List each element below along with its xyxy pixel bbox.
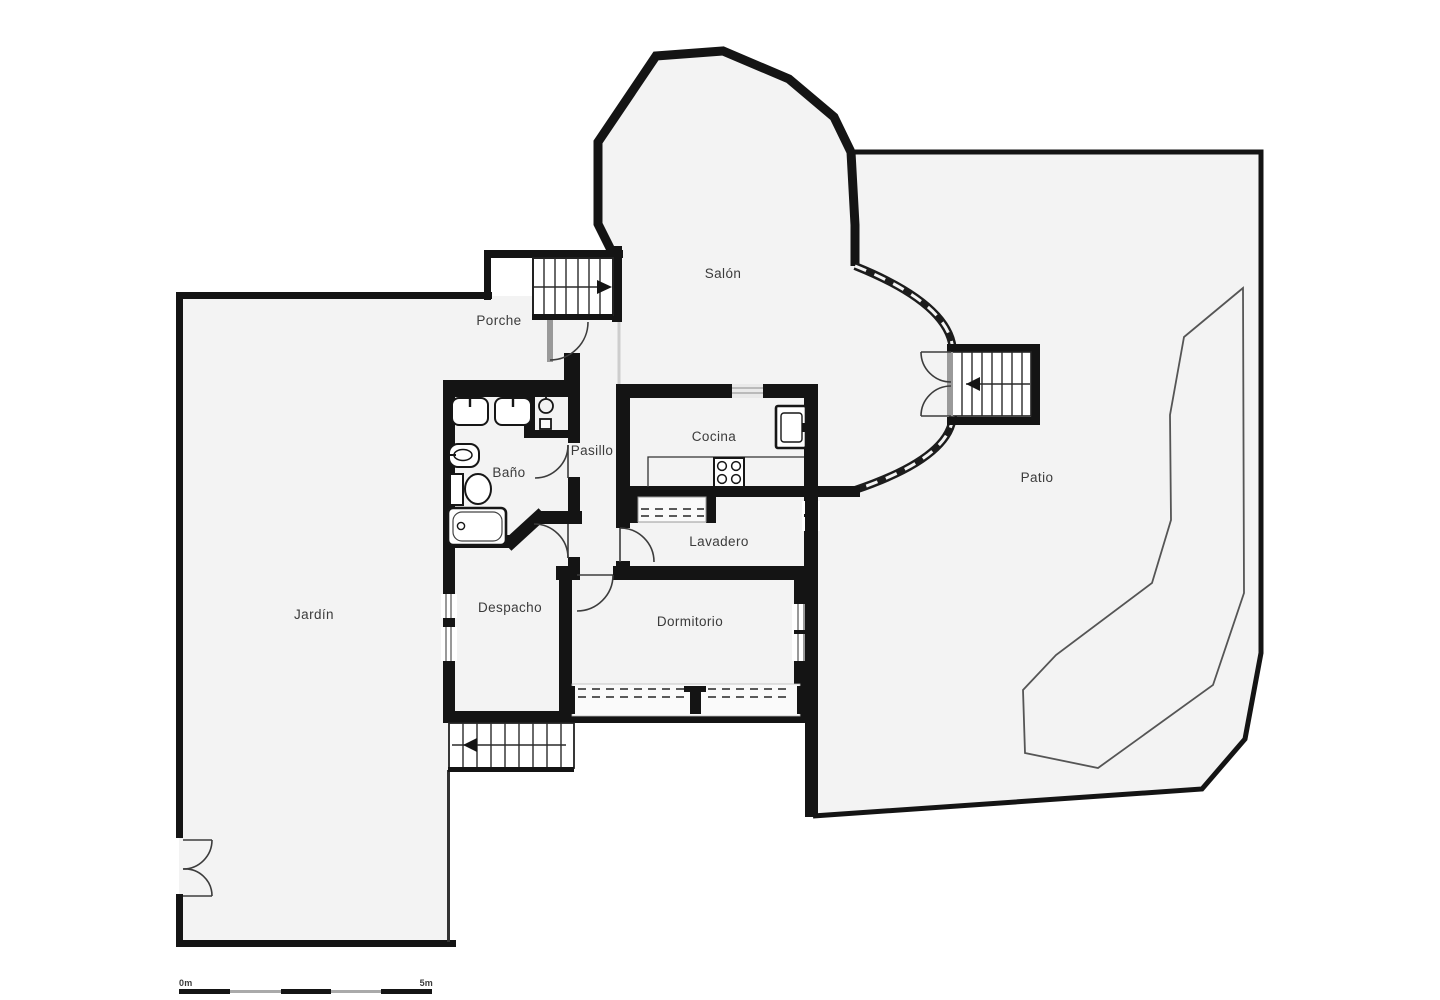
cocina-opening <box>732 384 763 398</box>
dormitorio-north-wall <box>613 566 809 580</box>
room-label-lavadero: Lavadero <box>689 534 749 549</box>
entrance-door-leaf <box>547 320 553 362</box>
wardrobe-stub-left <box>566 686 575 714</box>
floorplan-page: Salón Porche Cocina Pasillo Baño Lavader… <box>0 0 1440 1000</box>
staircase-bottom-south-edge <box>448 767 574 772</box>
pasillo-east-wall-a <box>616 390 630 528</box>
cocina-north-wall <box>616 384 818 398</box>
lavadero-closet-west-stub <box>629 497 638 523</box>
room-label-porche: Porche <box>476 313 521 328</box>
french-door-panel <box>947 352 953 416</box>
scale-segment-2 <box>230 990 281 993</box>
staircase-top-south-edge <box>532 314 613 320</box>
despacho-window-mullion <box>443 618 455 627</box>
despacho-window-1 <box>441 594 457 618</box>
staircase-right-north-wall <box>947 344 1040 352</box>
room-label-pasillo: Pasillo <box>571 443 614 458</box>
jardin-north-wall <box>176 292 492 299</box>
scale-start-label: 0m <box>179 978 192 988</box>
staircase-right-south-wall <box>947 417 1040 425</box>
lavadero-closet-east-stub <box>706 495 716 523</box>
room-label-dormitorio: Dormitorio <box>657 614 723 629</box>
scale-segment-1 <box>179 989 230 994</box>
room-label-salon: Salón <box>705 266 742 281</box>
jardin-south-wall <box>176 940 456 947</box>
wardrobe-stub-right <box>797 686 808 714</box>
porche-north-wall <box>484 250 623 258</box>
jardin-east-edge <box>447 770 450 942</box>
room-label-despacho: Despacho <box>478 600 542 615</box>
fridge-handle <box>802 423 809 432</box>
toilet-bowl-icon <box>465 474 491 504</box>
scale-segment-4 <box>331 990 381 993</box>
porche-west-stub <box>484 250 491 300</box>
wardrobe-stub-center <box>690 686 701 714</box>
pasillo-west-wall-b <box>568 477 580 512</box>
scale-bar: 0m 5m <box>179 978 433 994</box>
staircase-right-east-wall <box>1031 344 1040 425</box>
room-label-bano: Baño <box>492 465 525 480</box>
heater-closet-south-wall <box>524 430 572 438</box>
core-rooms-floor <box>443 380 818 723</box>
scale-segment-5 <box>381 989 432 994</box>
jardin-west-wall-upper <box>176 292 183 838</box>
patio-west-wall <box>805 490 818 817</box>
floorplan-drawing: Salón Porche Cocina Pasillo Baño Lavader… <box>0 0 1440 1000</box>
bano-south-east-stub <box>536 511 582 524</box>
scale-end-label: 5m <box>420 978 433 988</box>
room-label-jardin: Jardín <box>294 607 334 622</box>
pasillo-west-wall-a <box>568 381 580 443</box>
despacho-window-2 <box>441 627 457 661</box>
toilet-tank-icon <box>450 474 463 505</box>
jardin-west-wall-lower <box>176 894 183 947</box>
room-label-cocina: Cocina <box>692 429 737 444</box>
room-label-patio: Patio <box>1021 470 1054 485</box>
appliance-icon <box>540 419 551 429</box>
scale-segment-3 <box>281 989 331 994</box>
bano-north-wall <box>443 380 573 397</box>
